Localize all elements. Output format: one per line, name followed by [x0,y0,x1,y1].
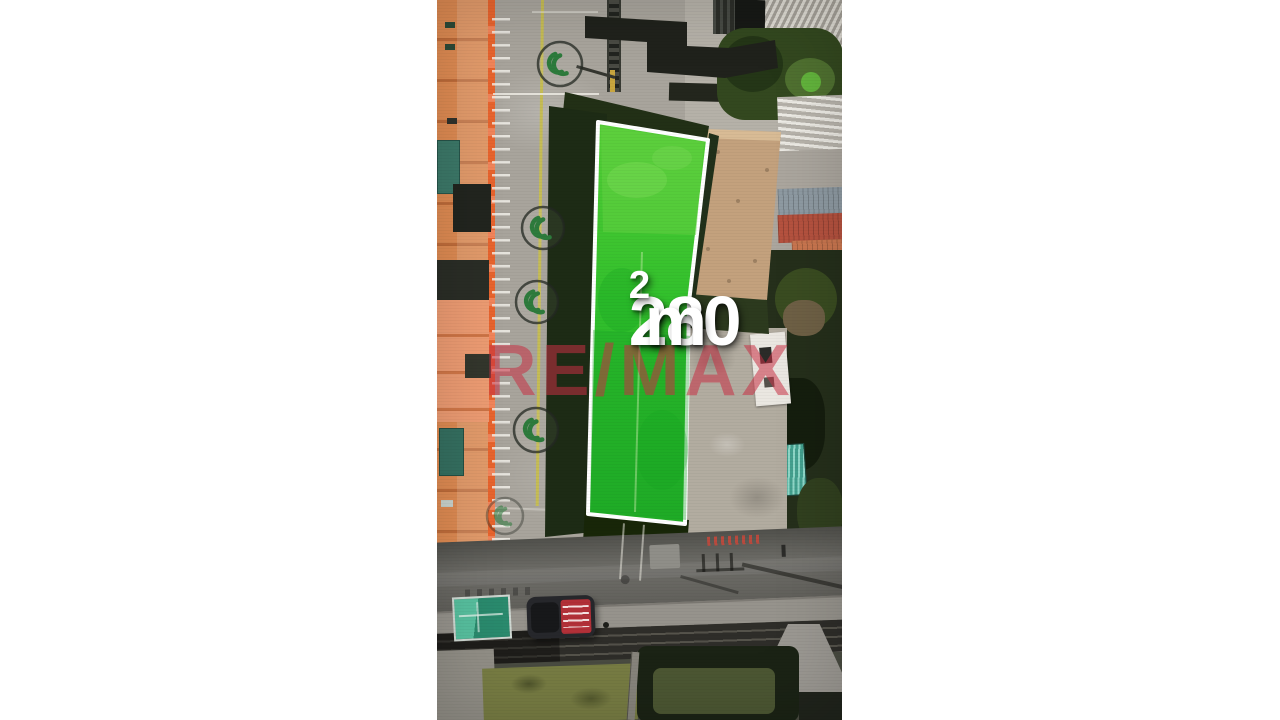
driveway-lines [619,523,645,580]
video-frame: RE/MAX 280m2 [0,0,1280,720]
pickup-bed-slats [563,605,590,628]
parking-logo [487,498,523,534]
parking-logo [522,207,564,249]
parking-logo [514,408,558,452]
pole-shadow-long [680,575,739,594]
area-exponent: 2 [629,264,650,307]
letterbox-left [0,0,437,720]
grass-strip [482,663,638,720]
area-label: 280m2 [437,286,842,356]
dark-rooftop [585,16,778,78]
lot-texture [607,162,667,198]
teal-canopy [452,595,512,642]
hedge-grass [653,668,775,714]
hedge-dark [637,646,799,720]
canopy-frame [459,613,503,617]
parked-pickup [526,595,595,639]
sign-post [603,622,609,628]
area-unit: m [645,286,705,356]
canopy-frame [476,602,480,632]
lot-texture [636,410,688,490]
lot-texture [652,146,692,170]
dark-corner-bottom-right [799,692,842,720]
red-curb-marks [707,535,761,546]
aerial-photo: RE/MAX 280m2 [437,0,842,720]
utility-pole [781,545,785,557]
letterbox-right [842,0,1280,720]
pickup-cab [530,602,559,633]
parking-logo [538,42,582,86]
road-patch [649,544,680,569]
pickup-red-bed [560,599,591,634]
